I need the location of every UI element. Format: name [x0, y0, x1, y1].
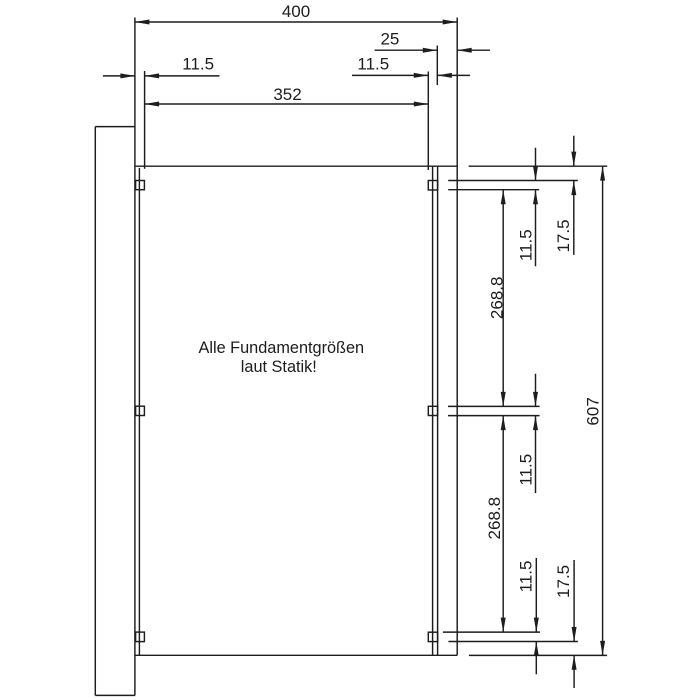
- svg-text:352: 352: [273, 85, 301, 104]
- svg-text:268.8: 268.8: [487, 277, 506, 320]
- svg-text:268.8: 268.8: [485, 497, 504, 540]
- svg-text:400: 400: [282, 2, 310, 21]
- svg-text:11.5: 11.5: [357, 55, 389, 74]
- svg-text:11.5: 11.5: [517, 454, 536, 486]
- svg-text:17.5: 17.5: [554, 219, 573, 252]
- svg-text:11.5: 11.5: [517, 561, 536, 593]
- svg-text:25: 25: [380, 29, 399, 48]
- svg-text:607: 607: [583, 397, 602, 425]
- svg-text:11.5: 11.5: [182, 55, 214, 74]
- svg-text:laut Statik!: laut Statik!: [241, 358, 317, 376]
- svg-text:17.5: 17.5: [554, 565, 573, 598]
- svg-text:Alle Fundamentgrößen: Alle Fundamentgrößen: [198, 339, 364, 357]
- svg-text:11.5: 11.5: [517, 229, 536, 261]
